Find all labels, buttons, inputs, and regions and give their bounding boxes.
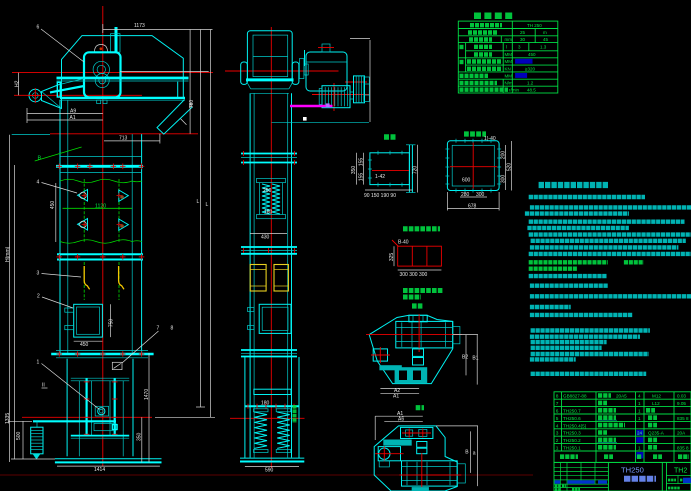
svg-text:7: 7 [157, 326, 160, 332]
svg-text:GB8827-88: GB8827-88 [563, 394, 587, 399]
svg-text:a: a [473, 451, 476, 457]
svg-text:450: 450 [528, 52, 536, 57]
svg-text:8: 8 [171, 326, 174, 332]
svg-text:780: 780 [189, 100, 195, 109]
svg-text:4: 4 [37, 180, 40, 186]
svg-text:L: L [197, 199, 200, 205]
svg-text:B1: B1 [472, 356, 478, 362]
svg-text:3: 3 [37, 271, 40, 277]
svg-text:1.2: 1.2 [527, 81, 534, 86]
svg-text:KN: KN [505, 66, 511, 71]
svg-text:500: 500 [16, 431, 22, 440]
svg-text:590: 590 [265, 468, 274, 474]
svg-text:750: 750 [108, 319, 114, 328]
svg-text:1335: 1335 [5, 413, 11, 424]
svg-text:6: 6 [37, 25, 40, 31]
svg-text:300: 300 [500, 175, 506, 184]
svg-text:48.5: 48.5 [527, 88, 536, 93]
svg-text:835 8: 835 8 [677, 416, 689, 421]
svg-text:5: 5 [556, 416, 559, 422]
svg-text:L: L [206, 202, 209, 208]
svg-text:180: 180 [264, 210, 273, 216]
svg-text:L12: L12 [652, 401, 660, 406]
svg-text:N/m: N/m [505, 81, 514, 86]
svg-text:835 8: 835 8 [677, 446, 689, 451]
svg-text:TH250.1: TH250.1 [563, 446, 581, 451]
svg-text:mm: mm [505, 37, 513, 42]
svg-text:25: 25 [520, 30, 526, 35]
svg-text:2: 2 [556, 438, 559, 444]
svg-text:II: II [42, 383, 45, 389]
svg-text:MM: MM [505, 59, 513, 64]
svg-text:M12: M12 [652, 394, 661, 399]
svg-text:2: 2 [37, 294, 40, 300]
svg-text:TH250.3: TH250.3 [563, 431, 581, 436]
svg-text:l: l [506, 45, 507, 50]
svg-text:A1: A1 [393, 393, 399, 399]
svg-text:713: 713 [119, 136, 128, 142]
svg-text:1: 1 [638, 409, 641, 414]
svg-text:A1: A1 [70, 115, 76, 121]
svg-text:TH250.2: TH250.2 [563, 438, 581, 443]
svg-text:600: 600 [462, 178, 471, 184]
svg-text:520: 520 [506, 163, 512, 172]
svg-text:0.03: 0.03 [677, 394, 686, 399]
svg-text:24: 24 [637, 431, 643, 436]
svg-text:1: 1 [638, 446, 641, 451]
svg-text:B: B [38, 156, 42, 162]
svg-text:A6: A6 [398, 417, 404, 423]
svg-text:280: 280 [461, 192, 470, 198]
svg-text:1: 1 [638, 401, 641, 406]
svg-text:678: 678 [468, 203, 477, 209]
svg-text:TH250.6: TH250.6 [563, 416, 581, 421]
svg-text:1120: 1120 [95, 203, 106, 209]
svg-text:≥320: ≥320 [525, 66, 535, 71]
svg-text:TH250: TH250 [621, 466, 644, 475]
svg-text:1: 1 [37, 360, 40, 366]
svg-text:B2: B2 [462, 355, 468, 361]
svg-text:300: 300 [476, 192, 485, 198]
svg-text:Q235-A: Q235-A [648, 431, 665, 436]
svg-text:720: 720 [412, 166, 418, 175]
svg-text:TH250.4(5): TH250.4(5) [563, 423, 587, 428]
svg-text:1470: 1470 [144, 389, 150, 400]
svg-text:B-40: B-40 [398, 240, 409, 246]
svg-text:1-42: 1-42 [375, 174, 385, 180]
svg-text:MM: MM [505, 74, 513, 79]
svg-text:430: 430 [261, 235, 270, 241]
svg-text:90 150 190 90: 90 150 190 90 [364, 193, 396, 199]
svg-text:250: 250 [263, 188, 272, 194]
svg-text:350: 350 [351, 166, 357, 175]
svg-text:4: 4 [556, 423, 559, 429]
svg-text:TH2: TH2 [674, 468, 687, 475]
svg-text:9.05: 9.05 [677, 401, 686, 406]
svg-text:20A: 20A [677, 431, 686, 436]
svg-text:r/min: r/min [509, 88, 519, 93]
svg-text:1173: 1173 [134, 23, 145, 29]
svg-text:H2: H2 [15, 80, 21, 87]
svg-text:TH 250: TH 250 [527, 23, 542, 28]
svg-text:H(mm): H(mm) [5, 246, 11, 262]
svg-text:m: m [543, 30, 547, 35]
svg-text:1: 1 [638, 416, 641, 421]
svg-text:1: 1 [556, 446, 559, 452]
svg-text:325: 325 [389, 253, 395, 262]
svg-text:155: 155 [358, 173, 364, 182]
svg-text:6: 6 [556, 409, 559, 415]
svg-text:4: 4 [638, 394, 641, 399]
svg-text:MM: MM [505, 52, 513, 57]
svg-text:20A5: 20A5 [616, 394, 627, 399]
svg-text:3: 3 [556, 431, 559, 437]
svg-text:450: 450 [80, 342, 89, 348]
svg-text:TH250.7: TH250.7 [563, 409, 581, 414]
svg-text:155: 155 [358, 158, 364, 167]
svg-text:45: 45 [543, 37, 549, 42]
svg-text:200: 200 [500, 151, 506, 160]
svg-text:300 300 300: 300 300 300 [400, 272, 428, 278]
svg-text:8: 8 [556, 394, 559, 400]
svg-text:1.3: 1.3 [540, 45, 547, 50]
svg-text:30: 30 [520, 37, 526, 42]
svg-text:A9: A9 [70, 108, 76, 114]
svg-text:1414: 1414 [94, 467, 105, 473]
svg-text:450: 450 [50, 201, 56, 210]
svg-text:7: 7 [556, 401, 559, 407]
svg-text:350: 350 [137, 432, 143, 441]
